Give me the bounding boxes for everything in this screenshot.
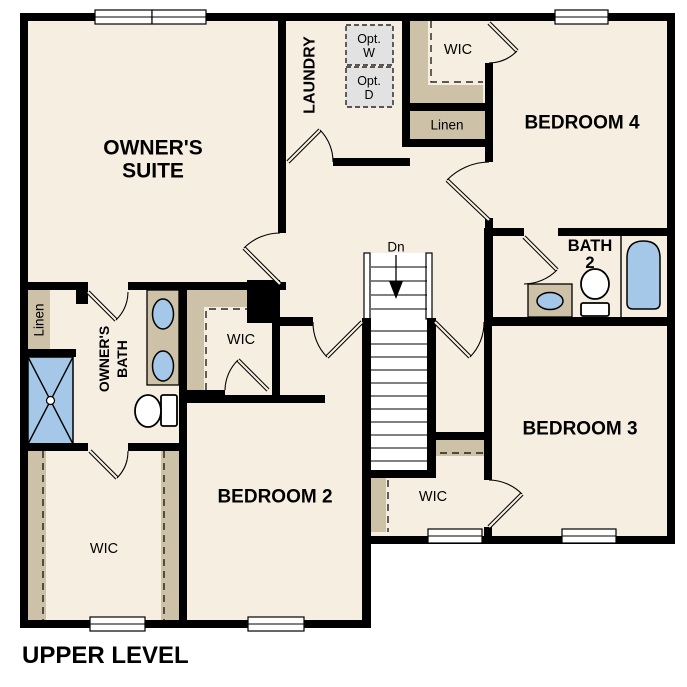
wall-segment	[20, 13, 28, 628]
label-bath2-line1: BATH	[568, 237, 613, 255]
window	[248, 617, 304, 631]
wall-segment	[484, 228, 493, 326]
label-linen-upper: Linen	[430, 118, 463, 133]
wall-segment	[187, 390, 225, 398]
wall-segment	[272, 317, 313, 326]
window	[562, 529, 616, 543]
label-owners-suite-line1: OWNER'S	[103, 137, 203, 160]
wall-segment	[333, 158, 410, 166]
wall-segment	[485, 63, 493, 162]
label-owners-bath-line1: OWNER'S	[96, 326, 112, 392]
shelf	[187, 290, 204, 390]
shelf	[410, 21, 428, 85]
wall-segment	[362, 470, 436, 478]
label-bath2-line2: 2	[585, 254, 594, 272]
wall-segment	[484, 317, 667, 326]
label-wic-hall: WIC	[227, 332, 255, 348]
wall-segment	[20, 349, 76, 357]
toilet-tank	[161, 395, 177, 426]
label-laundry: LAUNDRY	[302, 36, 319, 114]
sink	[153, 299, 174, 329]
label-washer-line1: Opt.	[357, 32, 381, 46]
shower-drain	[47, 397, 55, 405]
wall-segment	[364, 536, 675, 544]
label-dryer-line1: Opt.	[357, 74, 381, 88]
wall-segment	[179, 290, 187, 443]
wall-segment	[76, 290, 88, 304]
floor-plan-drawing: OWNER'S SUITE LAUNDRY WIC Linen BEDROOM …	[0, 0, 687, 687]
label-dryer-line2: D	[364, 88, 373, 102]
bathtub	[627, 241, 660, 309]
label-stairs-down: Dn	[387, 240, 404, 255]
window	[95, 10, 152, 24]
wall-segment	[667, 13, 675, 544]
staircase	[364, 253, 432, 470]
wall-segment	[484, 440, 492, 480]
sink	[153, 351, 174, 381]
wall-segment	[402, 103, 493, 111]
stair-rail	[364, 253, 370, 319]
floor-plan-page: OWNER'S SUITE LAUNDRY WIC Linen BEDROOM …	[0, 0, 687, 687]
wall-segment	[128, 443, 187, 451]
window	[152, 10, 206, 24]
window	[90, 617, 145, 631]
window	[428, 529, 482, 543]
wall-segment	[402, 13, 410, 147]
wall-segment	[20, 443, 88, 451]
label-owners-bath-line2: BATH	[114, 340, 130, 378]
label-bedroom2: BEDROOM 2	[217, 487, 332, 508]
wall-segment	[558, 228, 667, 236]
label-wic-bedroom4: WIC	[444, 42, 472, 58]
label-bedroom4: BEDROOM 4	[524, 113, 640, 134]
wall-segment	[179, 443, 187, 628]
label-owners-suite-line2: SUITE	[122, 160, 184, 183]
wall-segment	[247, 280, 280, 323]
wall-segment	[402, 139, 493, 147]
toilet-bowl	[135, 395, 161, 427]
wall-segment	[484, 326, 492, 432]
wall-segment	[427, 318, 436, 478]
toilet-bowl	[581, 269, 609, 299]
sink	[537, 293, 563, 310]
label-bedroom3: BEDROOM 3	[522, 419, 637, 440]
wall-segment	[428, 432, 492, 440]
label-wic-bedroom3: WIC	[419, 489, 447, 505]
wall-segment	[20, 620, 371, 628]
plan-title: UPPER LEVEL	[22, 642, 189, 669]
label-wic-owners: WIC	[90, 541, 118, 557]
wall-segment	[484, 527, 492, 536]
wall-segment	[20, 282, 88, 290]
wall-segment	[278, 21, 286, 233]
label-washer-line2: W	[363, 46, 375, 60]
window	[555, 10, 608, 24]
label-linen-owners: Linen	[32, 303, 47, 336]
toilet-tank	[581, 303, 609, 316]
shelf	[410, 85, 483, 103]
